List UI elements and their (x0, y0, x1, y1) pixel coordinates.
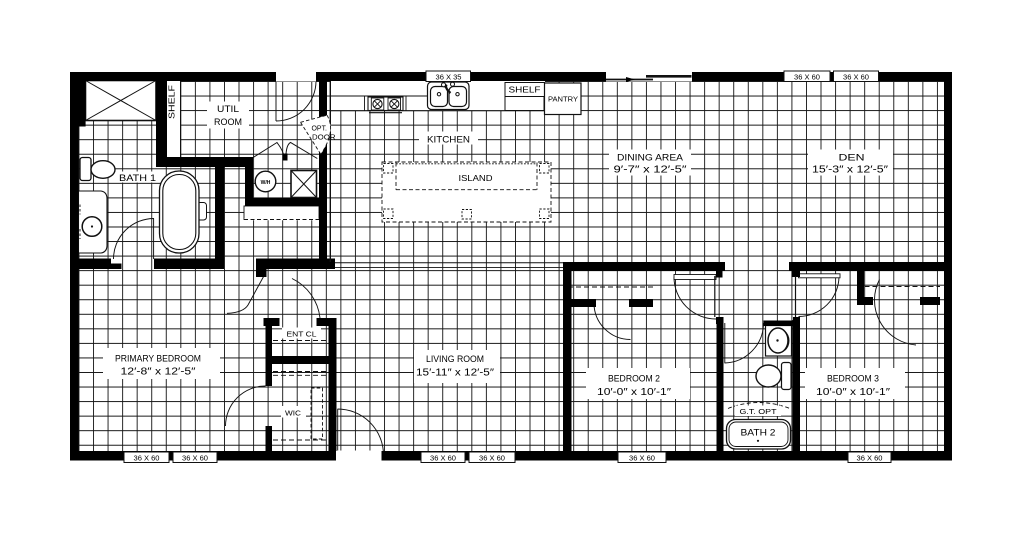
svg-text:DOOR: DOOR (312, 135, 336, 142)
svg-text:BATH 2: BATH 2 (741, 427, 776, 438)
svg-text:BEDROOM 2: BEDROOM 2 (608, 373, 660, 384)
svg-text:W/H: W/H (261, 180, 271, 186)
svg-text:BATH 1: BATH 1 (119, 173, 156, 184)
svg-text:PANTRY: PANTRY (548, 95, 578, 104)
svg-text:SHELF: SHELF (509, 86, 541, 95)
svg-text:UTIL: UTIL (217, 104, 239, 115)
svg-text:DEN: DEN (839, 153, 865, 164)
svg-text:WIC: WIC (285, 408, 302, 417)
svg-text:ISLAND: ISLAND (459, 173, 493, 183)
svg-text:DINING AREA: DINING AREA (617, 153, 684, 164)
svg-text:36 X 60: 36 X 60 (479, 455, 505, 462)
svg-text:KITCHEN: KITCHEN (427, 134, 470, 145)
svg-text:BEDROOM 3: BEDROOM 3 (827, 373, 879, 384)
svg-text:36 X 60: 36 X 60 (430, 455, 456, 462)
svg-text:G.T. OPT: G.T. OPT (740, 407, 777, 416)
svg-text:36 X 60: 36 X 60 (134, 455, 160, 462)
svg-text:PRIMARY BEDROOM: PRIMARY BEDROOM (115, 353, 201, 364)
svg-text:12′-8″ x 12′-5″: 12′-8″ x 12′-5″ (121, 367, 197, 378)
svg-text:OPT.: OPT. (312, 126, 328, 133)
svg-text:ROOM: ROOM (214, 117, 242, 128)
svg-text:ENT CL: ENT CL (287, 329, 317, 338)
svg-text:15′-11″ x 12′-5″: 15′-11″ x 12′-5″ (416, 367, 495, 378)
svg-text:36 X 60: 36 X 60 (794, 74, 820, 81)
svg-text:36 X 60: 36 X 60 (182, 455, 208, 462)
svg-text:LIVING ROOM: LIVING ROOM (426, 354, 484, 365)
svg-text:10′-0″ x 10′-1″: 10′-0″ x 10′-1″ (816, 387, 891, 398)
svg-text:10′-0″ x 10′-1″: 10′-0″ x 10′-1″ (597, 387, 672, 398)
svg-text:36 X 35: 36 X 35 (436, 74, 462, 81)
svg-text:36 X 60: 36 X 60 (857, 455, 883, 462)
svg-text:36 X 60: 36 X 60 (843, 74, 869, 81)
svg-text:15′-3″ x 12′-5″: 15′-3″ x 12′-5″ (812, 165, 889, 176)
svg-text:SHELF: SHELF (168, 85, 177, 119)
svg-text:36 X 60: 36 X 60 (629, 455, 655, 462)
svg-text:9′-7″ x 12′-5″: 9′-7″ x 12′-5″ (614, 165, 688, 176)
